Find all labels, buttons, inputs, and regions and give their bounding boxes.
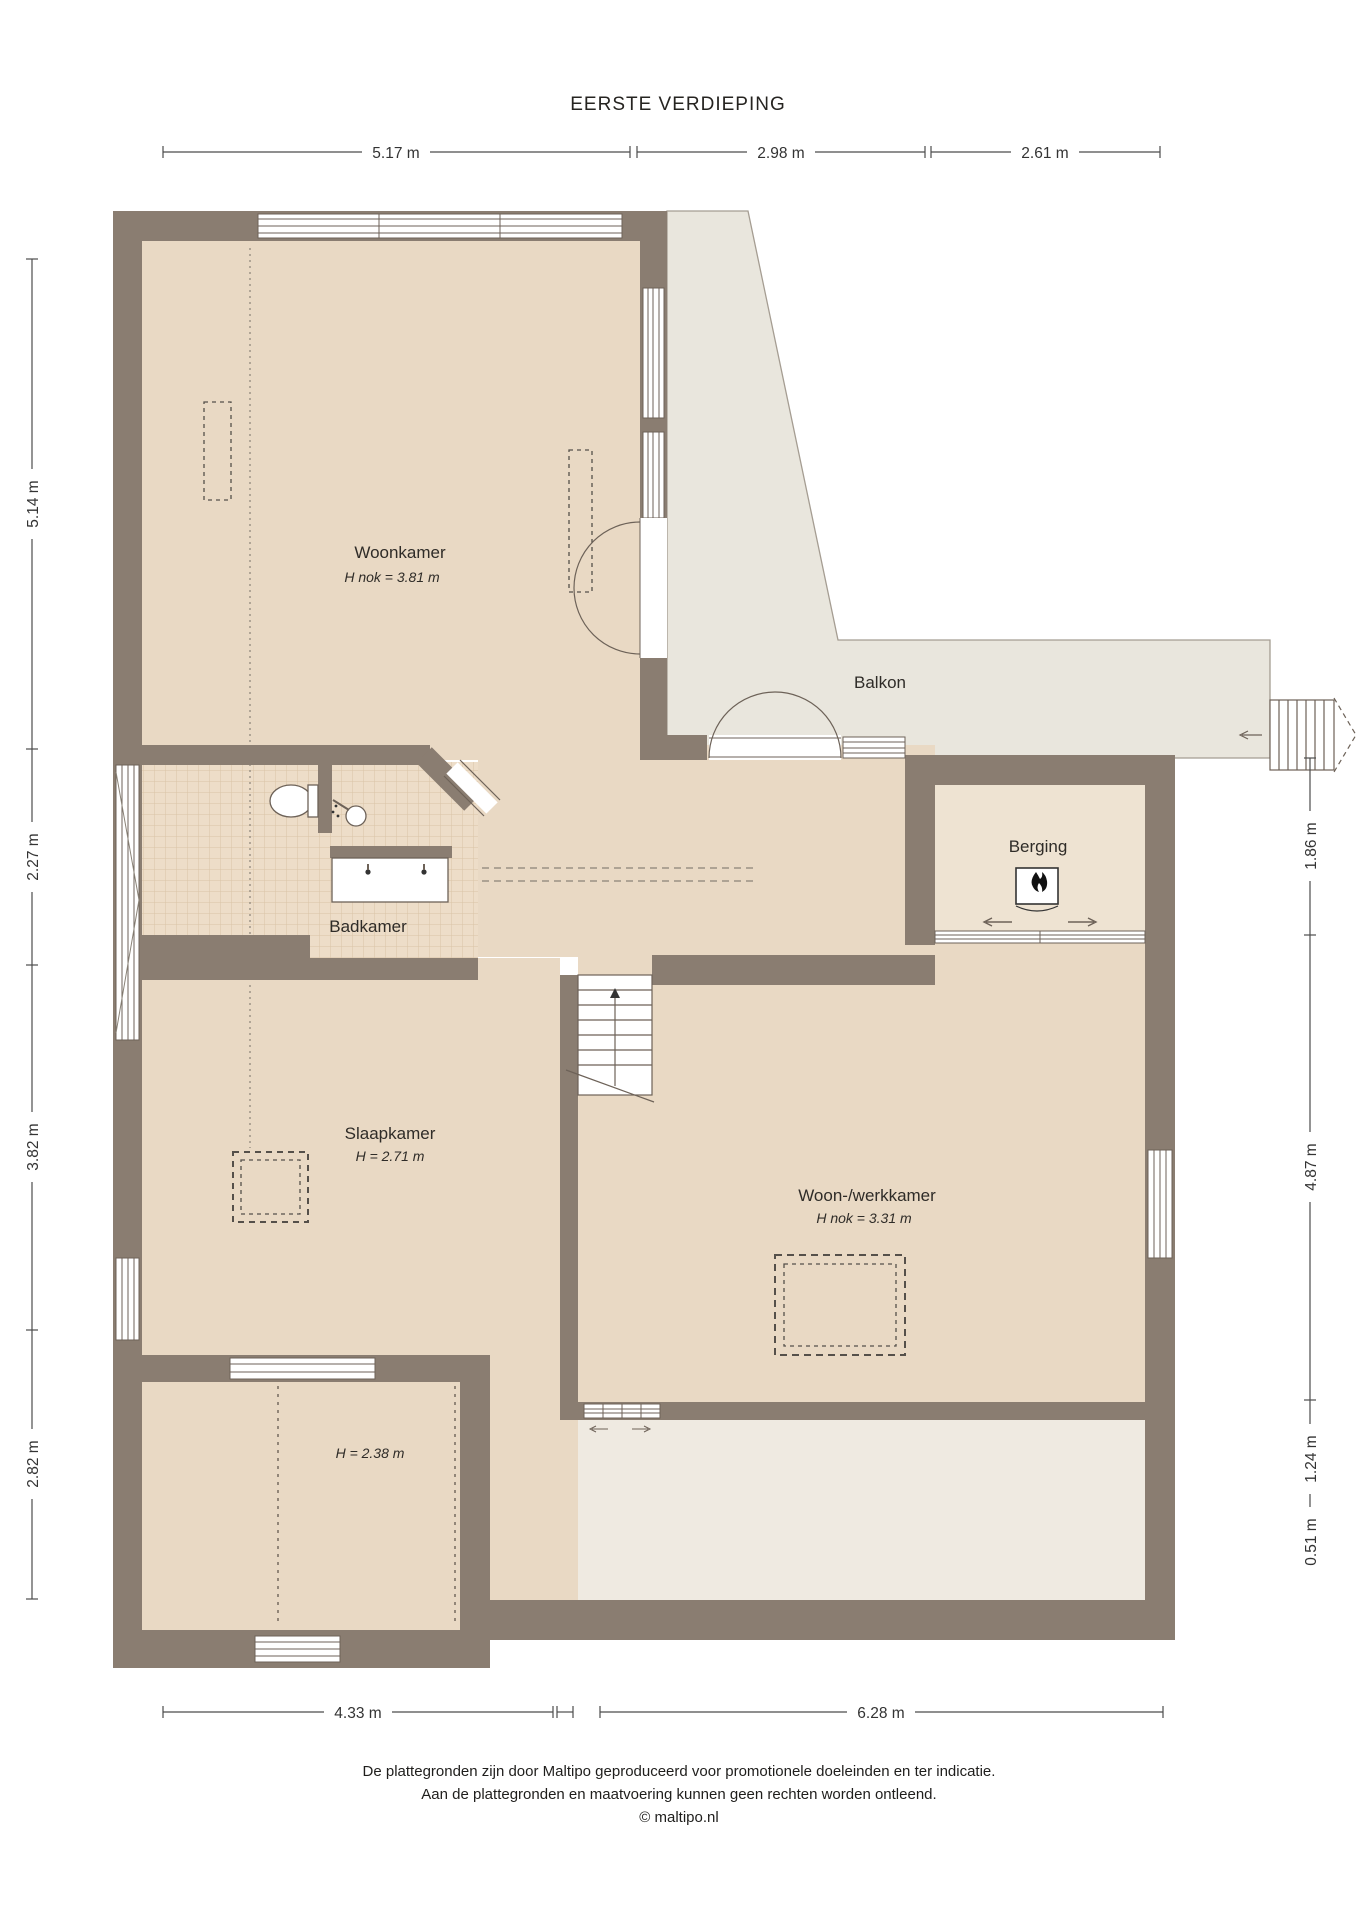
dim-label: 1.86 m xyxy=(1303,822,1320,869)
window-badkamer-west xyxy=(116,765,139,1040)
room-balkon xyxy=(667,211,1270,758)
stairs-up xyxy=(566,975,654,1102)
window-woonwerkkamer-east xyxy=(1148,1150,1172,1258)
window-top xyxy=(258,214,622,238)
window-kamer-linksonder xyxy=(255,1636,340,1662)
label-woonwerkkamer: Woon-/werkkamer xyxy=(798,1186,936,1205)
room-berging xyxy=(935,785,1145,935)
footer-line-3: © maltipo.nl xyxy=(639,1809,718,1826)
floor-plan-svg: EERSTE VERDIEPING xyxy=(0,0,1358,1920)
dim-label: 0.51 m xyxy=(1303,1518,1320,1565)
page-title: EERSTE VERDIEPING xyxy=(570,94,786,115)
dim-label: 3.82 m xyxy=(25,1123,42,1170)
dim-label: 1.24 m xyxy=(1303,1435,1320,1482)
boiler-icon xyxy=(1016,868,1058,911)
dim-label: 2.27 m xyxy=(25,833,42,880)
opening-slaapkamer-south xyxy=(230,1358,375,1379)
label-berging: Berging xyxy=(1009,837,1068,856)
room-woonwerkkamer-top xyxy=(935,943,1145,987)
dim-bottom xyxy=(163,1703,1163,1721)
label-kamer-linksonder-height: H = 2.38 m xyxy=(336,1445,405,1461)
dim-label: 2.98 m xyxy=(757,145,804,162)
dim-label: 2.61 m xyxy=(1021,145,1068,162)
label-woonwerkkamer-height: H nok = 3.31 m xyxy=(816,1210,912,1226)
room-corridor xyxy=(490,1400,578,1605)
label-slaapkamer-height: H = 2.71 m xyxy=(356,1148,425,1164)
label-balkon: Balkon xyxy=(854,673,906,692)
dim-label: 5.17 m xyxy=(372,145,419,162)
roof-strip xyxy=(578,1420,1145,1600)
dim-left xyxy=(23,259,41,1599)
vanity-sink xyxy=(332,858,448,902)
dim-top xyxy=(163,143,1160,161)
room-hal-2 xyxy=(578,945,652,977)
footer: De plattegronden zijn door Maltipo gepro… xyxy=(363,1763,996,1826)
window-slaapkamer-west xyxy=(116,1258,139,1340)
dim-label: 4.87 m xyxy=(1303,1143,1320,1190)
room-hal xyxy=(478,745,935,957)
floorplan-page: { "title": "EERSTE VERDIEPING", "rooms":… xyxy=(0,0,1358,1920)
label-badkamer: Badkamer xyxy=(329,917,407,936)
room-kamer-linksonder xyxy=(142,1355,490,1655)
dim-label: 5.14 m xyxy=(25,480,42,527)
label-woonkamer-height: H nok = 3.81 m xyxy=(344,569,440,585)
window-woonkamer-east xyxy=(643,288,664,518)
label-woonkamer: Woonkamer xyxy=(354,543,446,562)
window-balkon-band xyxy=(843,737,905,758)
dim-label: 6.28 m xyxy=(857,1705,904,1722)
room-slaapkamer xyxy=(142,958,560,1400)
dim-label: 2.82 m xyxy=(25,1440,42,1487)
dim-label: 4.33 m xyxy=(334,1705,381,1722)
footer-line-1: De plattegronden zijn door Maltipo gepro… xyxy=(363,1763,996,1780)
footer-line-2: Aan de plattegronden en maatvoering kunn… xyxy=(421,1786,936,1803)
toilet xyxy=(270,785,318,817)
label-slaapkamer: Slaapkamer xyxy=(345,1124,436,1143)
